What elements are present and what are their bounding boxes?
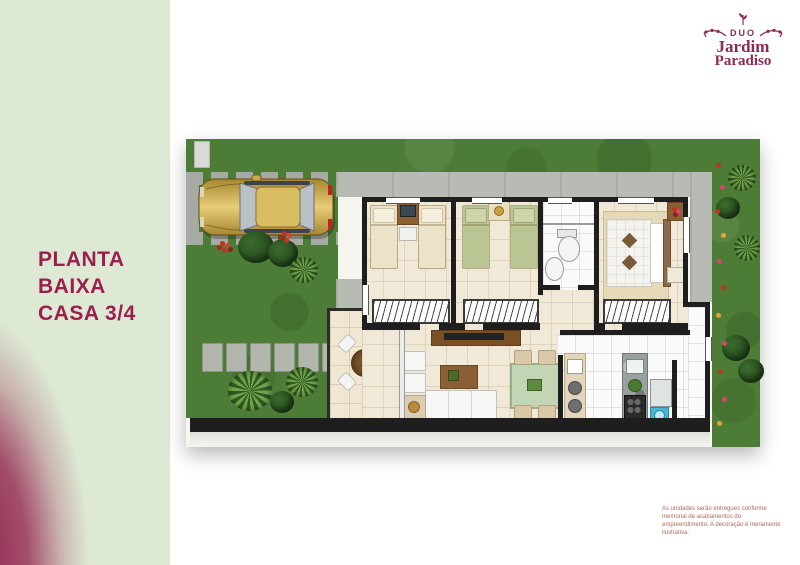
bed-fold [419, 224, 445, 226]
wardrobe [603, 299, 671, 324]
wall-kitchen-left [558, 355, 563, 418]
pillow [465, 208, 487, 223]
wardrobe [463, 299, 539, 324]
burner [568, 381, 582, 395]
bedroom1-dresser [399, 227, 417, 241]
page-title: PLANTA BAIXA CASA 3/4 [38, 246, 136, 327]
palm-plant [228, 371, 272, 411]
armchair [402, 351, 426, 371]
pillow [421, 208, 443, 223]
wall-bedrooms-bottom-b [439, 323, 465, 330]
wall-master-bottom [622, 323, 688, 330]
tv-screen-living [444, 333, 504, 340]
title-line-2: BAIXA [38, 273, 136, 300]
patio-wall-top [327, 308, 362, 311]
pillow [373, 208, 395, 223]
stepping-stone [274, 343, 295, 372]
brochure-page: PLANTA BAIXA CASA 3/4 DUO Jardim Par [0, 0, 800, 565]
window-master-side [683, 217, 690, 253]
single-bed [510, 205, 538, 269]
dining-centerpiece [527, 379, 542, 391]
kitchen-sink-left [567, 359, 583, 374]
dining-chair [538, 350, 556, 365]
single-bed [418, 205, 446, 269]
window-bedroom1-side [362, 285, 369, 315]
shower-divider [543, 223, 598, 225]
bed-fold [511, 224, 537, 226]
fern-plant [728, 165, 756, 191]
front-sidewalk [336, 172, 712, 197]
wall-bath-master [594, 197, 599, 330]
sliding-glass-door [399, 330, 405, 418]
vase-flowers [672, 207, 677, 212]
wall-master-bottom-stub [599, 323, 605, 330]
red-flowers [220, 241, 225, 246]
coffee-table [440, 365, 478, 389]
island-plant [628, 379, 642, 392]
wall-bath-bottom-r [578, 285, 599, 290]
bush [722, 335, 750, 361]
utility-post [194, 141, 210, 168]
stove-burners [627, 398, 641, 414]
boundary-wall [190, 418, 710, 432]
plan-bottom-margin [190, 432, 710, 447]
palm-plant [286, 367, 318, 397]
bush [716, 197, 740, 219]
entry-path [336, 279, 364, 310]
sofa [425, 390, 497, 420]
fern-plant [734, 235, 760, 261]
fridge [650, 379, 672, 407]
dining-chair [514, 350, 532, 365]
flower-border [716, 163, 721, 168]
fern-plant [290, 257, 318, 283]
table-decor [448, 370, 459, 381]
service-door [705, 337, 712, 361]
floor-lamp [408, 401, 420, 413]
wall-kitchen-top [560, 330, 690, 335]
parked-car [196, 175, 338, 241]
bush [738, 359, 764, 383]
tv-screen [400, 205, 416, 217]
patio-wall [327, 308, 330, 418]
legal-disclaimer: As unidades serão entregues conforme mem… [662, 505, 782, 537]
stepping-stones [202, 343, 343, 372]
red-flowers [282, 231, 287, 236]
pillow [513, 208, 535, 223]
bush [270, 391, 294, 413]
left-gradient-panel: PLANTA BAIXA CASA 3/4 [0, 0, 170, 565]
service-floor [688, 307, 705, 418]
logo-subname-text: Paradiso [693, 54, 793, 69]
bed-fold [371, 224, 397, 226]
single-bed [370, 205, 398, 269]
wall-kitchen-right [705, 307, 710, 432]
wall-bedrooms-bottom-a [362, 323, 420, 330]
single-bed [462, 205, 490, 269]
stepping-stone [202, 343, 223, 372]
burner [568, 399, 582, 413]
grass-top-strip [336, 139, 760, 172]
leaf-sprig-icon [735, 13, 751, 26]
double-bed [606, 219, 652, 287]
window-bedroom2 [472, 197, 502, 204]
table-lamp [494, 206, 504, 216]
wall-bed2-bath [538, 197, 543, 295]
window-bathroom [548, 197, 572, 204]
wardrobe [372, 299, 450, 324]
title-line-3: CASA 3/4 [38, 300, 136, 327]
window-bedroom1 [386, 197, 420, 204]
island-sink [626, 359, 644, 374]
logo-name-text: Jardim [693, 39, 793, 54]
bed-fold [463, 224, 489, 226]
wall-bed1-bed2 [451, 197, 456, 328]
stepping-stone [226, 343, 247, 372]
bathroom-sink [545, 257, 564, 281]
toilet [558, 236, 580, 262]
wall-bedrooms-bottom-c [483, 323, 540, 330]
window-master [618, 197, 654, 204]
side-walkway [690, 172, 712, 302]
armchair [402, 373, 426, 393]
wall-service-divider [672, 360, 677, 418]
stepping-stone [250, 343, 271, 372]
pillow-column [650, 223, 664, 283]
brand-logo: DUO Jardim Paradiso [693, 13, 793, 69]
wall-bath-bottom-l [538, 285, 560, 290]
floor-plan [186, 139, 760, 447]
title-line-1: PLANTA [38, 246, 136, 273]
